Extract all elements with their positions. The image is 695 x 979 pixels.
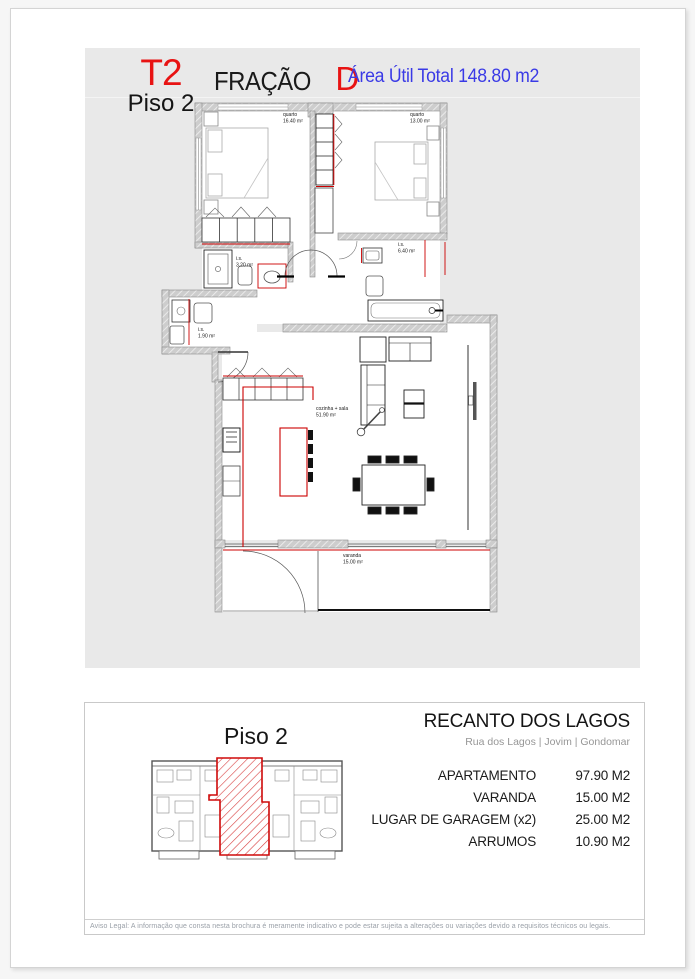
svg-text:6.40 m²: 6.40 m² [398, 249, 415, 255]
fraction-title: FRAÇÃO D [214, 60, 359, 98]
row-label: APARTAMENTO [290, 768, 550, 783]
project-title: RECANTO DOS LAGOS [290, 711, 630, 733]
svg-text:13.00 m²: 13.00 m² [410, 119, 430, 125]
row-value: 10.90 M2 [550, 834, 630, 849]
label-is640: i.s. [398, 242, 404, 248]
info-box: Piso 2 [84, 702, 645, 935]
label-is190: i.s. [198, 327, 204, 333]
keyplan-floor-title: Piso 2 [211, 723, 301, 750]
row-value: 97.90 M2 [550, 768, 630, 783]
legal-disclaimer: Aviso Legal: A informação que consta nes… [85, 919, 644, 934]
total-area-label: Área Útil Total 148.80 m2 [348, 66, 539, 88]
svg-text:16.40 m²: 16.40 m² [283, 119, 303, 125]
row-value: 15.00 M2 [550, 790, 630, 805]
table-row: LUGAR DE GARAGEM (x2) 25.00 M2 [290, 812, 630, 834]
project-address: Rua dos Lagos | Jovim | Gondomar [290, 736, 630, 748]
project-info: RECANTO DOS LAGOS Rua dos Lagos | Jovim … [290, 711, 630, 856]
unit-type-label: T2 [128, 52, 194, 94]
row-label: VARANDA [290, 790, 550, 805]
label-is320: i.s. [236, 256, 242, 262]
area-table: APARTAMENTO 97.90 M2 VARANDA 15.00 M2 LU… [290, 768, 630, 856]
dining-table [353, 456, 434, 514]
label-quarto1: quarto [283, 112, 297, 118]
stove [223, 428, 240, 452]
svg-text:51.90 m²: 51.90 m² [316, 413, 336, 419]
label-cozinha: cozinha + sala [316, 406, 348, 412]
table-row: ARRUMOS 10.90 M2 [290, 834, 630, 856]
svg-text:15.00 m²: 15.00 m² [343, 560, 363, 566]
row-label: LUGAR DE GARAGEM (x2) [290, 812, 550, 827]
floorplan-drawing: quarto 16.40 m² quarto 13.00 m² i.s. 3.2… [160, 100, 505, 618]
row-label: ARRUMOS [290, 834, 550, 849]
label-varanda: varanda [343, 553, 361, 559]
table-row: VARANDA 15.00 M2 [290, 790, 630, 812]
label-quarto2: quarto [410, 112, 424, 118]
fraction-word: FRAÇÃO [214, 66, 311, 97]
svg-text:1.90 m²: 1.90 m² [198, 334, 215, 340]
row-value: 25.00 M2 [550, 812, 630, 827]
table-row: APARTAMENTO 97.90 M2 [290, 768, 630, 790]
brochure-page: T2 Piso 2 FRAÇÃO D Área Útil Total 148.8… [0, 0, 695, 979]
svg-text:3.20 m²: 3.20 m² [236, 263, 253, 269]
